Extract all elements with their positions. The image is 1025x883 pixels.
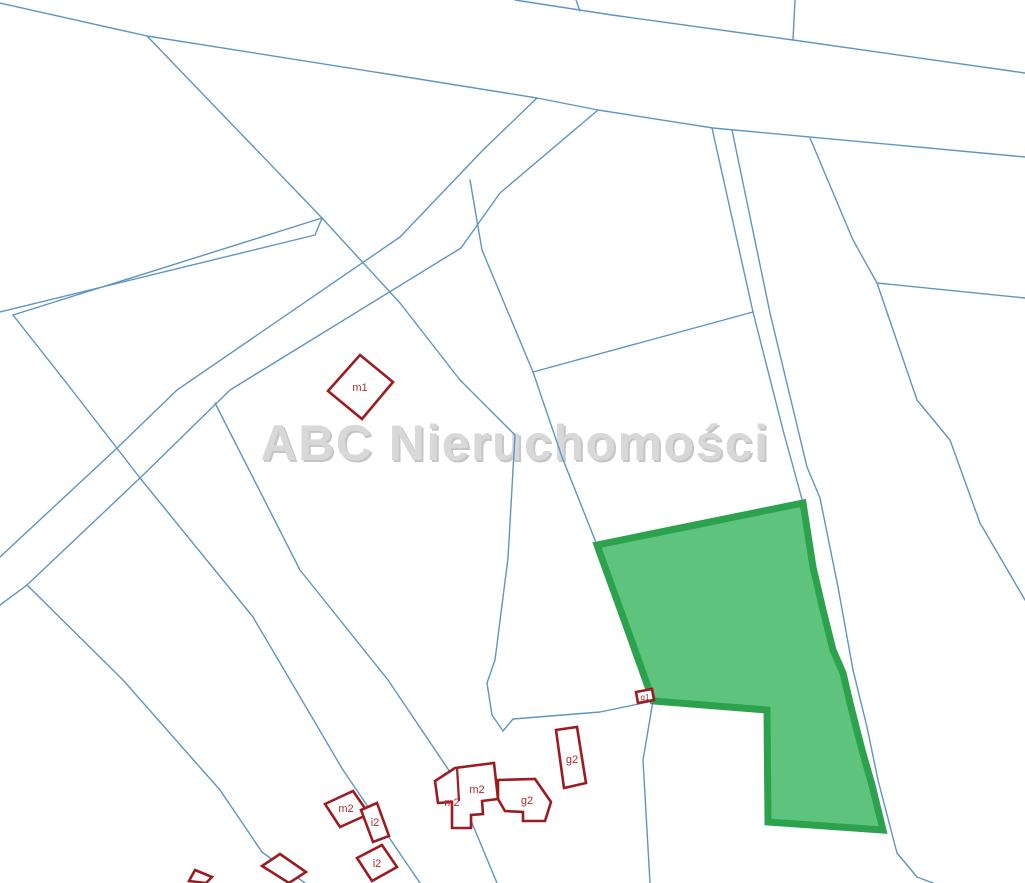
boundary-narrow-road-upper <box>13 218 322 315</box>
boundary-road-top-upper <box>515 0 1025 73</box>
boundary-diag-band-upper <box>0 98 537 557</box>
highlighted-parcel-shape[interactable] <box>597 503 883 830</box>
building-label-g2-tall: g2 <box>566 754 578 766</box>
boundary-tangent-line <box>27 585 305 883</box>
boundary-zigzag-line <box>322 218 653 731</box>
building-label-i2-lower: i2 <box>373 858 382 870</box>
building-m2-pair <box>435 763 498 828</box>
boundary-below-notch <box>643 701 653 883</box>
building-label-m2-left: m2 <box>338 803 353 815</box>
building-label-m1: m1 <box>352 382 367 394</box>
building-label-g1: g1 <box>641 693 650 702</box>
cadastral-map[interactable]: ABC Nieruchomości ABC Nieruchomości <box>0 0 1025 883</box>
boundary-branch-left <box>147 36 322 218</box>
boundary-road-top-lower <box>0 3 1025 157</box>
boundary-connector-to-road <box>533 312 753 372</box>
boundary-right-steep-branch <box>810 138 1025 600</box>
watermark: ABC Nieruchomości ABC Nieruchomości <box>261 415 772 473</box>
highlighted-parcel[interactable] <box>597 503 883 830</box>
map-canvas[interactable]: ABC Nieruchomości ABC Nieruchomości <box>0 0 1025 883</box>
building-label-i2-small: i2 <box>371 817 380 829</box>
building-label-m2-pair-right: m2 <box>469 784 484 796</box>
building-corner-fragment <box>189 870 212 883</box>
boundary-tick-b <box>793 0 795 40</box>
boundary-line-to-parcel-corner <box>470 180 597 545</box>
boundary-narrow-road-lower <box>0 218 322 312</box>
building-label-g2-attached: g2 <box>521 795 533 807</box>
boundary-diag-band-lower <box>0 110 598 605</box>
building-label-m2-pair-left: m2 <box>444 797 459 809</box>
boundary-right-horizontal <box>877 283 1025 298</box>
